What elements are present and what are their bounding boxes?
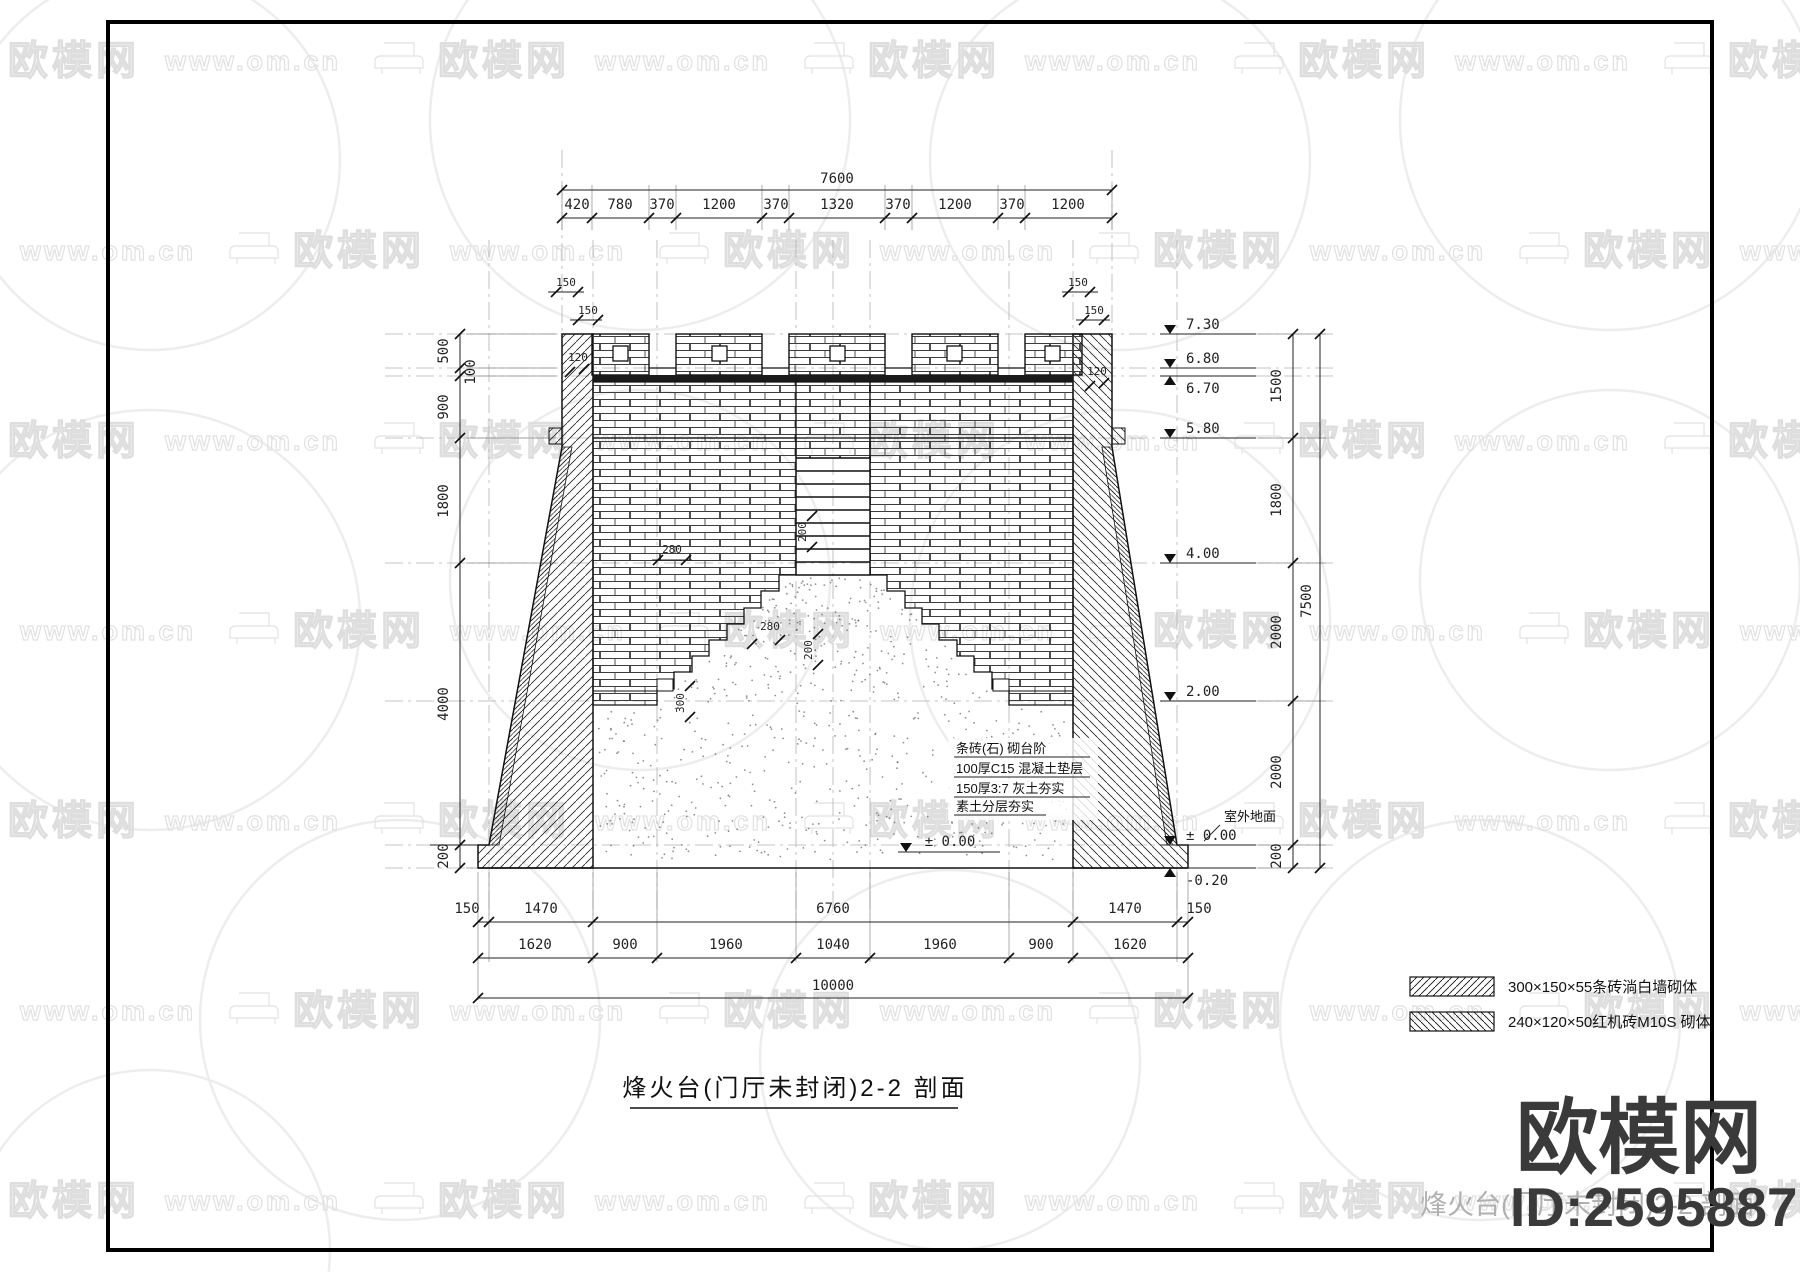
stipple-dot	[810, 682, 812, 684]
stipple-dot	[696, 681, 698, 683]
stipple-dot	[903, 653, 905, 655]
stipple-dot	[790, 603, 792, 605]
stipple-dot	[786, 608, 788, 610]
watermark-brand: 欧模网	[8, 1179, 140, 1223]
stipple-dot	[1054, 840, 1056, 842]
stipple-dot	[799, 781, 801, 783]
stipple-dot	[837, 651, 839, 653]
stipple-dot	[611, 823, 613, 825]
sofa-icon	[805, 803, 853, 834]
stipple-dot	[732, 820, 734, 822]
stipple-dot	[680, 759, 682, 761]
legend-swatch-whitewashed-brick	[1410, 977, 1494, 996]
stipple-dot	[946, 680, 948, 682]
stipple-dot	[778, 820, 780, 822]
stipple-dot	[659, 826, 661, 828]
stipple-dot	[780, 634, 782, 636]
stipple-dot	[610, 844, 612, 846]
stipple-dot	[903, 822, 905, 824]
stipple-dot	[774, 801, 776, 803]
stipple-dot	[787, 848, 789, 850]
dim-label: 370	[885, 197, 910, 213]
stipple-dot	[839, 812, 841, 814]
stipple-dot	[726, 761, 728, 763]
stipple-dot	[693, 814, 695, 816]
stipple-dot	[851, 788, 853, 790]
watermark-brand: 欧模网	[1298, 1179, 1430, 1223]
stipple-dot	[1002, 822, 1004, 824]
stipple-dot	[684, 680, 686, 682]
stipple-dot	[822, 749, 824, 751]
stipple-dot	[917, 718, 919, 720]
left-ledge-nub	[549, 428, 562, 444]
stipple-dot	[747, 745, 749, 747]
stipple-dot	[794, 596, 796, 598]
dim-offset: 150	[556, 276, 576, 289]
stipple-dot	[1055, 820, 1057, 822]
stipple-dot	[810, 584, 812, 586]
stipple-dot	[812, 823, 814, 825]
stipple-dot	[853, 657, 855, 659]
stipple-dot	[630, 719, 632, 721]
stipple-dot	[700, 747, 702, 749]
stipple-dot	[984, 832, 986, 834]
stipple-dot	[650, 765, 652, 767]
stipple-dot	[721, 786, 723, 788]
stipple-dot	[917, 712, 919, 714]
stipple-dot	[667, 770, 669, 772]
stipple-dot	[717, 782, 719, 784]
stipple-dot	[652, 800, 654, 802]
elevation-triangle	[1164, 554, 1176, 563]
stipple-dot	[751, 805, 753, 807]
stipple-dot	[873, 691, 875, 693]
stipple-dot	[752, 714, 754, 716]
stipple-dot	[863, 760, 865, 762]
stipple-dot	[852, 681, 854, 683]
stipple-dot	[740, 630, 742, 632]
stipple-dot	[782, 825, 784, 827]
stipple-dot	[953, 702, 955, 704]
stipple-dot	[797, 743, 799, 745]
stipple-dot	[774, 695, 776, 697]
stipple-dot	[901, 783, 903, 785]
stipple-dot	[605, 806, 607, 808]
dim-tick	[685, 681, 695, 691]
stipple-dot	[794, 653, 796, 655]
stipple-dot	[764, 851, 766, 853]
dim-tread: 200	[796, 522, 809, 542]
watermark-brand: 欧模网	[723, 229, 855, 273]
watermark-site: www.om.cn	[164, 806, 341, 836]
stipple-dot	[934, 672, 936, 674]
stipple-dot	[631, 723, 633, 725]
watermark-brand: 欧模网	[1728, 419, 1800, 463]
stipple-dot	[867, 610, 869, 612]
stipple-dot	[695, 679, 697, 681]
stipple-dot	[752, 784, 754, 786]
stipple-dot	[771, 728, 773, 730]
stipple-dot	[821, 605, 823, 607]
stipple-dot	[609, 738, 611, 740]
stipple-dot	[633, 845, 635, 847]
sofa-icon	[375, 43, 423, 74]
stipple-dot	[803, 715, 805, 717]
stipple-dot	[824, 622, 826, 624]
stipple-dot	[1034, 839, 1036, 841]
stipple-dot	[894, 655, 896, 657]
stipple-dot	[802, 599, 804, 601]
dim-label: 1800	[436, 484, 452, 518]
watermark-brand: 欧模网	[1298, 419, 1430, 463]
stipple-dot	[623, 806, 625, 808]
stipple-dot	[968, 711, 970, 713]
stipple-dot	[774, 607, 776, 609]
stipple-dot	[756, 850, 758, 852]
stipple-dot	[1062, 823, 1064, 825]
stipple-dot	[609, 820, 611, 822]
elevation-value: 5.80	[1186, 421, 1220, 437]
stipple-dot	[925, 658, 927, 660]
stipple-dot	[739, 850, 741, 852]
stipple-dot	[710, 787, 712, 789]
dim-step: 280	[760, 620, 780, 633]
stipple-dot	[835, 611, 837, 613]
stipple-dot	[791, 787, 793, 789]
stipple-dot	[944, 646, 946, 648]
stipple-dot	[623, 722, 625, 724]
dim-label: 4000	[436, 687, 452, 721]
stipple-dot	[662, 821, 664, 823]
note-line: 100厚C15 混凝土垫层	[956, 761, 1083, 776]
dim-label: 900	[436, 394, 452, 419]
stipple-dot	[862, 663, 864, 665]
stipple-dot	[814, 851, 816, 853]
stipple-dot	[724, 655, 726, 657]
stipple-dot	[792, 584, 794, 586]
stipple-dot	[611, 738, 613, 740]
stipple-dot	[654, 744, 656, 746]
stipple-dot	[979, 840, 981, 842]
watermark-site: www.om.cn	[594, 1186, 771, 1216]
stipple-dot	[866, 768, 868, 770]
stipple-dot	[629, 830, 631, 832]
watermark-site: www.om.cn	[1739, 236, 1800, 266]
stipple-dot	[753, 620, 755, 622]
stipple-dot	[727, 723, 729, 725]
stipple-dot	[978, 827, 980, 829]
stipple-dot	[897, 761, 899, 763]
stipple-dot	[838, 818, 840, 820]
dim-label: 1040	[816, 937, 850, 953]
stipple-dot	[695, 807, 697, 809]
stipple-dot	[827, 607, 829, 609]
stipple-dot	[692, 751, 694, 753]
stipple-dot	[763, 641, 765, 643]
stipple-dot	[890, 636, 892, 638]
dim-label: 6760	[816, 901, 850, 917]
stipple-dot	[619, 805, 621, 807]
stipple-dot	[828, 725, 830, 727]
dim-tick	[807, 511, 817, 521]
stipple-dot	[781, 728, 783, 730]
beacon-tower-section-drawing: 欧模网www.om.cn欧模网www.om.cn欧模网www.om.cn欧模网w…	[0, 0, 1800, 1272]
stipple-dot	[871, 759, 873, 761]
sofa-icon	[375, 1183, 423, 1214]
stipple-dot	[850, 598, 852, 600]
stipple-dot	[1052, 724, 1054, 726]
stipple-dot	[836, 622, 838, 624]
stipple-dot	[768, 826, 770, 828]
stipple-dot	[599, 825, 601, 827]
stipple-dot	[877, 670, 879, 672]
stipple-dot	[710, 698, 712, 700]
stipple-dot	[807, 583, 809, 585]
stipple-dot	[815, 831, 817, 833]
stipple-dot	[805, 667, 807, 669]
watermark-brand: 欧模网	[1298, 799, 1430, 843]
stipple-dot	[803, 664, 805, 666]
note-line: 素土分层夯实	[956, 799, 1034, 814]
stipple-dot	[789, 623, 791, 625]
stipple-dot	[666, 781, 668, 783]
elevation-markers: 7.306.806.705.804.002.00± 0.00-0.20	[1160, 317, 1256, 889]
stipple-dot	[857, 797, 859, 799]
stipple-dot	[797, 622, 799, 624]
stipple-dot	[736, 776, 738, 778]
stipple-dot	[829, 788, 831, 790]
stipple-dot	[660, 709, 662, 711]
stipple-dot	[753, 839, 755, 841]
stipple-dot	[694, 730, 696, 732]
stipple-dot	[644, 734, 646, 736]
stipple-dot	[877, 838, 879, 840]
sofa-icon	[1520, 233, 1568, 264]
stipple-dot	[789, 827, 791, 829]
elevation-value: 6.70	[1186, 381, 1220, 397]
elevation-value: 6.80	[1186, 351, 1220, 367]
stipple-dot	[724, 689, 726, 691]
interior-level-text: ± 0.00	[925, 834, 976, 850]
stipple-dot	[726, 662, 728, 664]
dim-offset: 150	[1084, 304, 1104, 317]
stipple-dot	[672, 850, 674, 852]
dim-tread: 200	[802, 640, 815, 660]
stipple-dot	[948, 674, 950, 676]
watermark-site: www.om.cn	[879, 996, 1056, 1026]
dim-offset: 150	[1068, 276, 1088, 289]
stipple-dot	[761, 852, 763, 854]
stipple-dot	[1033, 734, 1035, 736]
stipple-dot	[661, 857, 663, 859]
stipple-dot	[777, 616, 779, 618]
stipple-dot	[765, 657, 767, 659]
right-ledge-nub	[1112, 428, 1125, 444]
stipple-dot	[607, 718, 609, 720]
stipple-dot	[856, 851, 858, 853]
dim-step: 280	[662, 543, 682, 556]
stipple-dot	[862, 654, 864, 656]
stipple-dot	[878, 607, 880, 609]
stipple-dot	[614, 813, 616, 815]
stipple-dot	[755, 643, 757, 645]
elevation-triangle	[1164, 376, 1176, 385]
right-footing-step	[993, 679, 1009, 691]
stipple-dot	[746, 695, 748, 697]
stipple-dot	[944, 714, 946, 716]
stipple-dot	[838, 577, 840, 579]
stipple-dot	[855, 651, 857, 653]
watermark-site: www.om.cn	[594, 806, 771, 836]
stipple-dot	[937, 684, 939, 686]
sofa-icon	[1235, 43, 1283, 74]
stipple-dot	[894, 822, 896, 824]
stipple-dot	[748, 700, 750, 702]
stipple-dot	[774, 737, 776, 739]
stipple-dot	[1013, 846, 1015, 848]
stipple-dot	[841, 661, 843, 663]
stipple-dot	[864, 679, 866, 681]
stipple-dot	[775, 807, 777, 809]
watermark-brand: 欧模网	[723, 989, 855, 1033]
stipple-dot	[643, 788, 645, 790]
stipple-dot	[781, 691, 783, 693]
watermark-brand: 欧模网	[8, 799, 140, 843]
stipple-dot	[767, 658, 769, 660]
stipple-dot	[913, 718, 915, 720]
stipple-dot	[864, 600, 866, 602]
stipple-dot	[910, 643, 912, 645]
stipple-dot	[805, 829, 807, 831]
stipple-dot	[636, 777, 638, 779]
stipple-dot	[729, 747, 731, 749]
stipple-dot	[701, 738, 703, 740]
watermark-site: www.om.cn	[164, 1186, 341, 1216]
stipple-dot	[659, 793, 661, 795]
stipple-dot	[803, 847, 805, 849]
dim-label: 1620	[1113, 937, 1147, 953]
stipple-dot	[718, 679, 720, 681]
watermark-site: www.om.cn	[1309, 616, 1486, 646]
dim-label: 1960	[923, 937, 957, 953]
stipple-dot	[890, 808, 892, 810]
stipple-dot	[951, 658, 953, 660]
stipple-dot	[848, 602, 850, 604]
stipple-dot	[688, 850, 690, 852]
dim-course: 300	[674, 693, 687, 713]
stipple-dot	[729, 762, 731, 764]
watermark-brand: 欧模网	[1728, 799, 1800, 843]
stipple-dot	[1042, 854, 1044, 856]
stipple-dot	[770, 676, 772, 678]
stipple-dot	[946, 669, 948, 671]
stipple-dot	[907, 636, 909, 638]
stipple-dot	[809, 589, 811, 591]
stipple-dot	[971, 823, 973, 825]
stipple-dot	[640, 806, 642, 808]
stipple-dot	[808, 828, 810, 830]
stipple-dot	[796, 703, 798, 705]
sofa-icon	[375, 423, 423, 454]
stipple-dot	[668, 810, 670, 812]
watermark-brand: 欧模网	[438, 1179, 570, 1223]
stipple-dot	[627, 725, 629, 727]
stipple-dot	[653, 791, 655, 793]
dim-merlon: 120	[568, 351, 588, 364]
stipple-dot	[789, 583, 791, 585]
stipple-dot	[604, 773, 606, 775]
stipple-dot	[648, 836, 650, 838]
stipple-dot	[678, 796, 680, 798]
stipple-dot	[1016, 847, 1018, 849]
dim-tick	[813, 660, 823, 670]
sofa-icon	[1665, 423, 1713, 454]
stipple-dot	[1012, 732, 1014, 734]
stipple-dot	[809, 631, 811, 633]
stipple-dot	[896, 788, 898, 790]
stipple-dot	[726, 695, 728, 697]
legend-label: 240×120×50红机砖M10S 砌体	[1508, 1014, 1711, 1031]
stipple-dot	[752, 635, 754, 637]
dim-tick	[807, 542, 817, 552]
stipple-dot	[886, 816, 888, 818]
stipple-dot	[599, 752, 601, 754]
drawing-title: 烽火台(门厅未封闭)2-2 剖面	[622, 1075, 967, 1102]
stipple-dot	[815, 583, 817, 585]
stipple-dot	[869, 673, 871, 675]
stipple-dot	[769, 599, 771, 601]
stipple-dot	[616, 752, 618, 754]
merlon-loophole	[613, 346, 628, 361]
stipple-dot	[932, 754, 934, 756]
stipple-dot	[898, 697, 900, 699]
stipple-dot	[861, 681, 863, 683]
stipple-dot	[630, 854, 632, 856]
right-corbel-mass	[870, 438, 1073, 705]
stipple-dot	[659, 717, 661, 719]
dim-label: 1200	[702, 197, 736, 213]
stipple-dot	[712, 686, 714, 688]
stipple-dot	[846, 629, 848, 631]
stipple-dot	[714, 693, 716, 695]
stipple-dot	[830, 582, 832, 584]
stipple-dot	[821, 614, 823, 616]
stipple-dot	[876, 588, 878, 590]
stipple-dot	[637, 782, 639, 784]
stipple-dot	[633, 818, 635, 820]
stipple-dot	[855, 622, 857, 624]
stipple-dot	[880, 849, 882, 851]
stipple-dot	[874, 734, 876, 736]
stipple-dot	[814, 722, 816, 724]
stipple-dot	[685, 810, 687, 812]
stipple-dot	[696, 717, 698, 719]
stipple-dot	[847, 841, 849, 843]
stipple-dot	[678, 688, 680, 690]
stipple-dot	[945, 698, 947, 700]
watermark-brand: 欧模网	[1583, 229, 1715, 273]
site-brand: 欧模网	[1516, 1093, 1762, 1184]
stipple-dot	[725, 665, 727, 667]
stipple-dot	[818, 823, 820, 825]
elevation-value: -0.20	[1186, 873, 1228, 889]
stipple-dot	[986, 691, 988, 693]
stipple-dot	[784, 816, 786, 818]
stipple-dot	[764, 756, 766, 758]
stipple-dot	[705, 739, 707, 741]
stipple-dot	[691, 686, 693, 688]
stipple-dot	[800, 740, 802, 742]
